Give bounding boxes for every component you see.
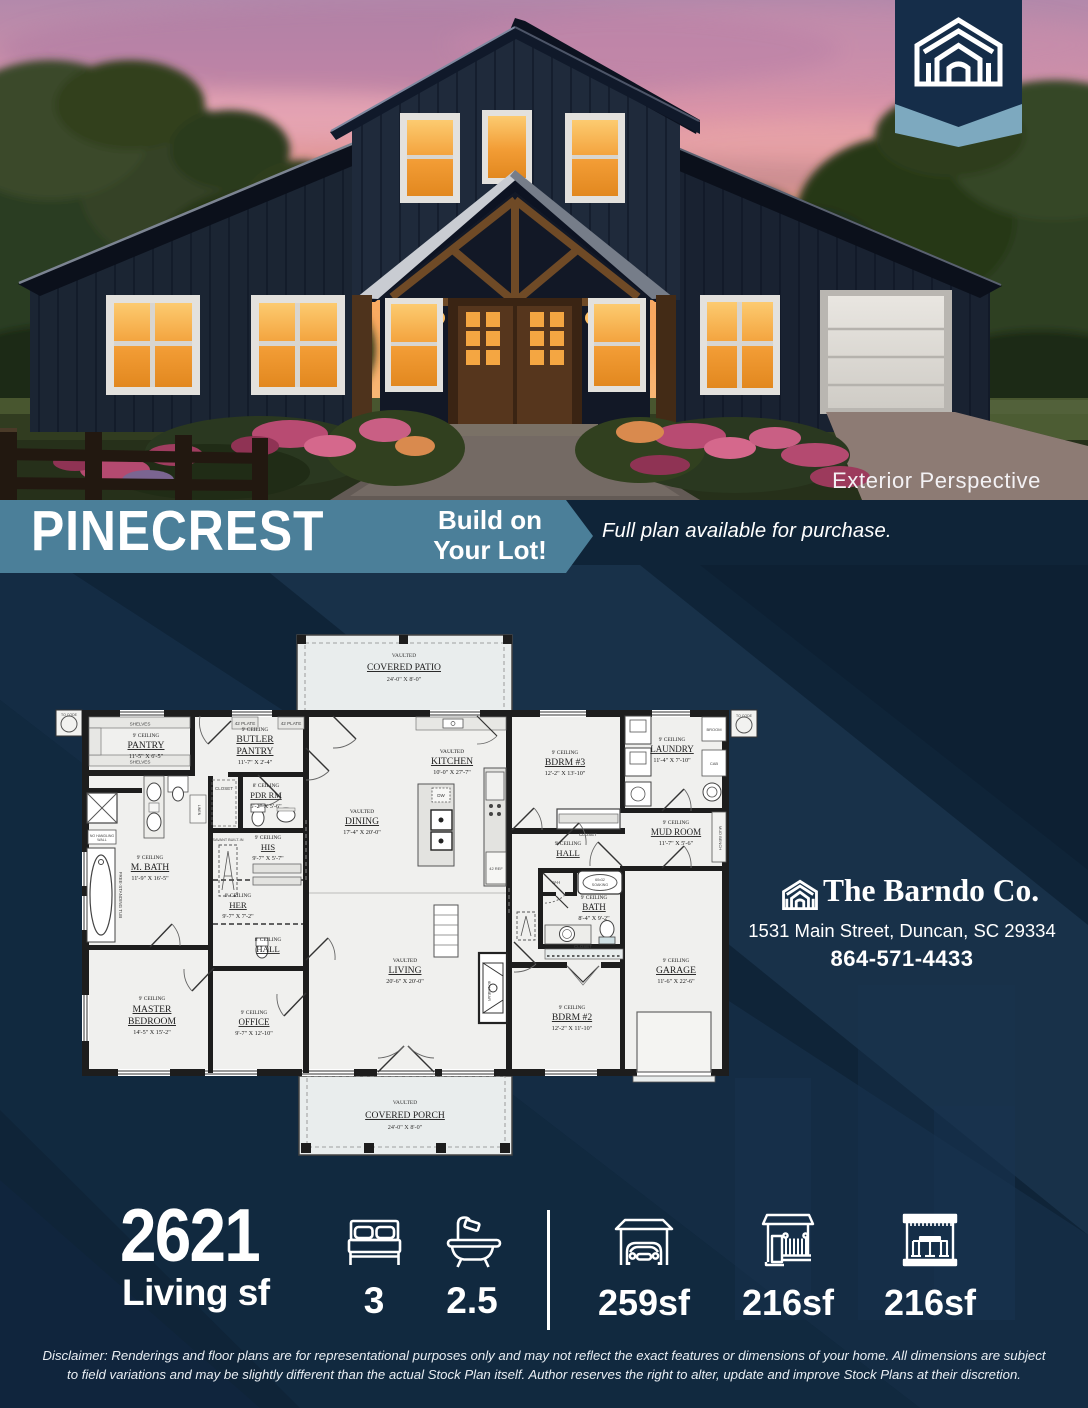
svg-text:BDRM #2: BDRM #2 <box>552 1012 592 1023</box>
svg-text:KITCHEN: KITCHEN <box>431 756 473 767</box>
svg-text:42 PLATE: 42 PLATE <box>235 721 256 726</box>
svg-text:9' CEILING: 9' CEILING <box>552 750 579 756</box>
svg-text:M. BATH: M. BATH <box>131 862 169 873</box>
svg-text:CAB: CAB <box>710 761 719 766</box>
svg-text:CLOSET: CLOSET <box>579 832 597 837</box>
svg-text:17'-4" X 20'-0": 17'-4" X 20'-0" <box>343 829 381 836</box>
svg-text:COVERED PATIO: COVERED PATIO <box>367 662 441 673</box>
svg-text:60x32: 60x32 <box>595 878 605 882</box>
svg-text:BEDROOM: BEDROOM <box>128 1016 176 1027</box>
svg-text:VAULTED: VAULTED <box>393 1100 417 1106</box>
svg-text:CLOSET: CLOSET <box>574 944 592 949</box>
svg-text:9' CEILING: 9' CEILING <box>133 733 160 739</box>
svg-text:9'-7" X 12'-10": 9'-7" X 12'-10" <box>235 1030 273 1037</box>
svg-text:LAUNDRY: LAUNDRY <box>650 744 694 754</box>
svg-text:BROOM: BROOM <box>706 727 721 732</box>
svg-text:24'-0" X 8'-0": 24'-0" X 8'-0" <box>387 676 422 683</box>
svg-text:MUD ROOM: MUD ROOM <box>651 827 701 837</box>
svg-text:PDR RM: PDR RM <box>250 791 282 800</box>
svg-text:9' CEILING: 9' CEILING <box>255 835 282 841</box>
svg-text:TO CODE: TO CODE <box>736 714 753 718</box>
svg-text:PANTRY: PANTRY <box>237 746 274 757</box>
svg-text:PANTRY: PANTRY <box>128 740 165 751</box>
svg-text:HALL: HALL <box>556 848 579 858</box>
svg-text:60 LINEAR: 60 LINEAR <box>487 981 492 1001</box>
svg-text:11'-4" X 7'-10": 11'-4" X 7'-10" <box>653 757 691 764</box>
svg-text:LIVING: LIVING <box>388 965 421 976</box>
svg-text:SHELVES: SHELVES <box>130 760 151 765</box>
svg-text:LINEN: LINEN <box>197 805 201 816</box>
svg-text:24'-0" X 8'-0": 24'-0" X 8'-0" <box>388 1124 423 1131</box>
svg-text:9' CEILING: 9' CEILING <box>137 855 164 861</box>
svg-text:FREE-STANDING TUB: FREE-STANDING TUB <box>118 872 123 919</box>
svg-text:HIS: HIS <box>261 842 275 852</box>
svg-text:DINING: DINING <box>345 816 379 827</box>
svg-text:14'-5" X 15'-2": 14'-5" X 15'-2" <box>133 1029 171 1036</box>
svg-text:42 REF: 42 REF <box>489 866 503 871</box>
svg-text:8'-4" X 9'-2": 8'-4" X 9'-2" <box>578 915 610 922</box>
svg-text:SOAKING: SOAKING <box>592 883 609 887</box>
svg-text:OFFICE: OFFICE <box>238 1017 270 1027</box>
svg-text:BDRM #3: BDRM #3 <box>545 757 585 768</box>
svg-text:12'-2" X 13'-10": 12'-2" X 13'-10" <box>545 770 586 777</box>
svg-text:9' CEILING: 9' CEILING <box>242 727 269 733</box>
svg-text:9'-7" X 5'-7": 9'-7" X 5'-7" <box>252 855 284 862</box>
svg-text:9' CEILING: 9' CEILING <box>663 820 690 826</box>
svg-text:BATH: BATH <box>582 902 606 912</box>
svg-text:VAULTED: VAULTED <box>440 749 464 755</box>
svg-text:12'-2" X 11'-10": 12'-2" X 11'-10" <box>552 1025 593 1032</box>
svg-text:11'-9" X 16'-5": 11'-9" X 16'-5" <box>131 875 169 882</box>
svg-text:11'-5" X 6'-5": 11'-5" X 6'-5" <box>129 753 164 760</box>
svg-text:5'-2" X 5'-6": 5'-2" X 5'-6" <box>250 803 282 810</box>
svg-text:20'-6" X 20'-0": 20'-6" X 20'-0" <box>386 978 424 985</box>
svg-text:VAULTED: VAULTED <box>350 809 374 815</box>
svg-text:11'-6" X 22'-6": 11'-6" X 22'-6" <box>657 978 695 985</box>
svg-text:WALL: WALL <box>97 838 106 842</box>
svg-text:11'-7" X 5'-6": 11'-7" X 5'-6" <box>659 840 694 847</box>
svg-text:9' CEILING: 9' CEILING <box>663 958 690 964</box>
svg-text:HALL: HALL <box>256 944 279 954</box>
svg-text:9' CEILING: 9' CEILING <box>659 737 686 743</box>
svg-text:MUD BENCH: MUD BENCH <box>718 826 723 850</box>
svg-text:9' CEILING: 9' CEILING <box>225 893 252 899</box>
svg-text:42 PLATE: 42 PLATE <box>281 721 302 726</box>
svg-text:COVERED PORCH: COVERED PORCH <box>365 1110 445 1121</box>
svg-text:11'-7" X 2'-4": 11'-7" X 2'-4" <box>238 759 273 766</box>
svg-text:DW: DW <box>437 793 445 798</box>
svg-text:BUTLER: BUTLER <box>236 734 274 745</box>
svg-text:GARAGE: GARAGE <box>656 965 696 976</box>
svg-text:CLOSET: CLOSET <box>215 786 233 791</box>
svg-text:MASTER: MASTER <box>133 1004 173 1015</box>
svg-text:9'-7" X 7'-2": 9'-7" X 7'-2" <box>222 913 254 920</box>
svg-text:9' CEILING: 9' CEILING <box>241 1010 268 1016</box>
svg-text:VAULTED: VAULTED <box>392 653 416 659</box>
svg-text:HER: HER <box>229 900 247 910</box>
svg-text:SAVANT BUILT-IN: SAVANT BUILT-IN <box>213 838 244 842</box>
svg-text:TO CODE: TO CODE <box>61 713 78 717</box>
svg-text:10'-0" X 27'-7": 10'-0" X 27'-7" <box>433 769 471 776</box>
svg-text:9' CEILING: 9' CEILING <box>555 841 582 847</box>
svg-text:8' CEILING: 8' CEILING <box>255 937 282 943</box>
svg-text:SHELVES: SHELVES <box>130 722 151 727</box>
svg-text:VAULTED: VAULTED <box>393 958 417 964</box>
svg-text:9' CEILING: 9' CEILING <box>581 895 608 901</box>
svg-text:9' CEILING: 9' CEILING <box>559 1005 586 1011</box>
svg-text:8' CEILING: 8' CEILING <box>253 783 280 789</box>
svg-text:9' CEILING: 9' CEILING <box>139 996 166 1002</box>
